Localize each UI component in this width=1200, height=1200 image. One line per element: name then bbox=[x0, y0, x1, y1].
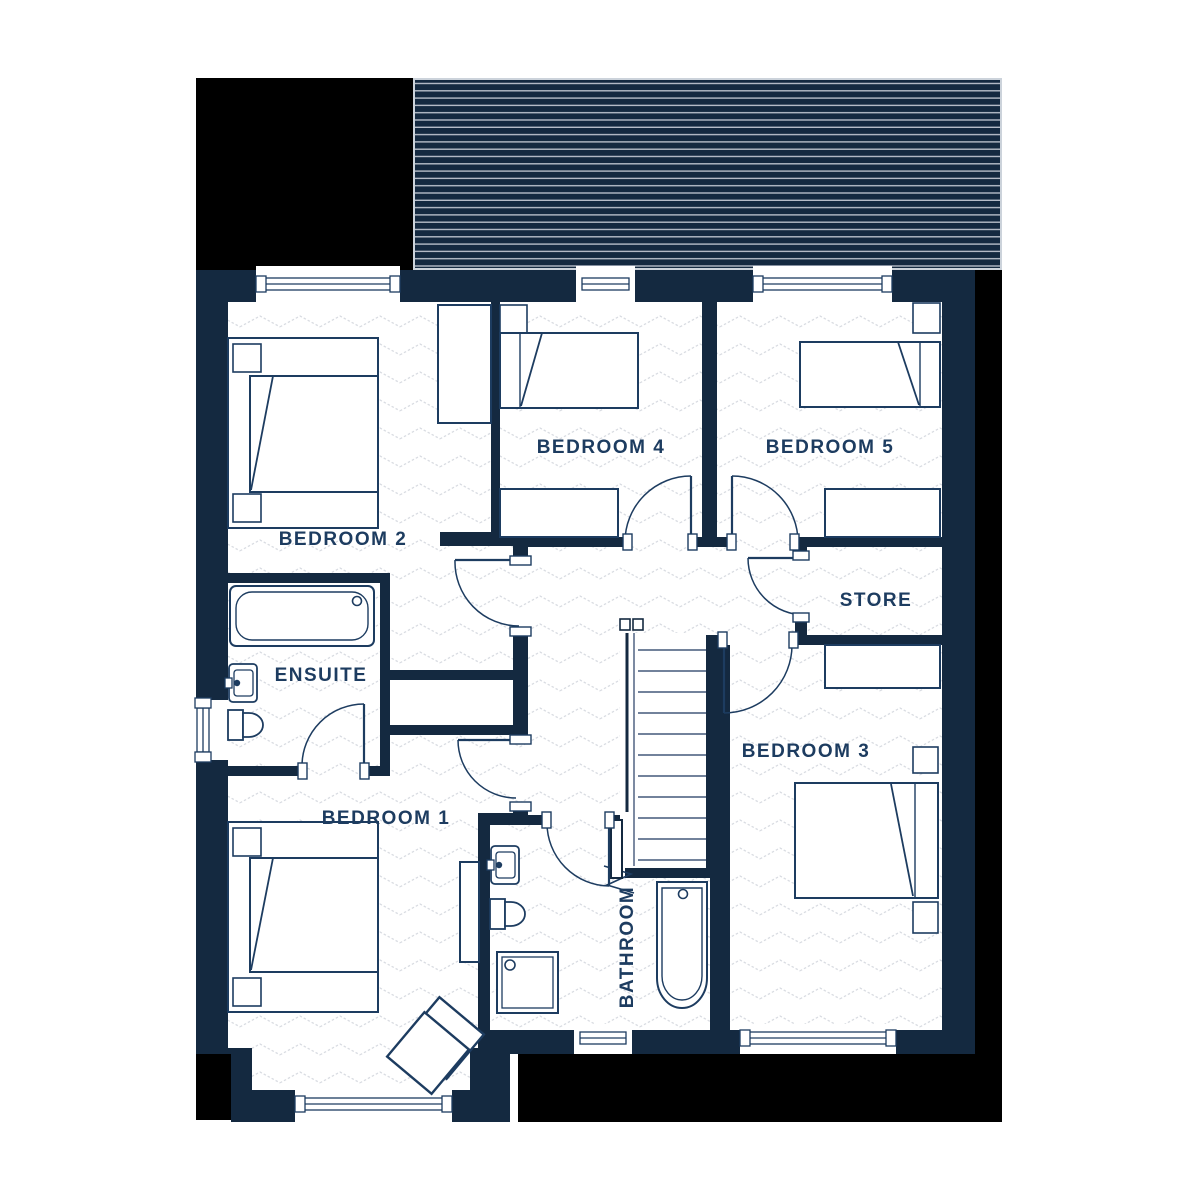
stair-guard bbox=[611, 820, 622, 878]
bathtub-bathroom bbox=[657, 882, 707, 1008]
bathtub-ensuite bbox=[230, 586, 374, 646]
built-in-cupboard bbox=[390, 680, 513, 725]
shower-bathroom bbox=[497, 952, 558, 1013]
bed-double-bedroom2 bbox=[228, 338, 378, 528]
window-bedroom3 bbox=[740, 1024, 896, 1054]
bottom-left-masked-block bbox=[196, 1048, 231, 1120]
bedroom5-label: BEDROOM 5 bbox=[766, 437, 895, 458]
wardrobe-bedroom2 bbox=[438, 305, 491, 423]
bedroom3-label: BEDROOM 3 bbox=[742, 741, 871, 762]
ensuite-label: ENSUITE bbox=[275, 665, 368, 686]
wardrobe-bedroom1 bbox=[460, 862, 479, 962]
window-bathroom bbox=[574, 1024, 632, 1054]
bottom-masked-band bbox=[518, 1054, 1002, 1122]
sink-bathroom bbox=[487, 846, 519, 884]
floor-plan-page: BEDROOM 2 BEDROOM 4 BEDROOM 5 STORE BEDR… bbox=[0, 0, 1200, 1200]
window-bedroom4 bbox=[576, 266, 635, 302]
adjoining-solid-block bbox=[196, 78, 413, 270]
window-bedroom2 bbox=[256, 266, 400, 302]
desk-bedroom3 bbox=[825, 645, 940, 688]
window-bedroom5 bbox=[753, 266, 892, 302]
sink-ensuite bbox=[225, 664, 257, 702]
floor-plan: BEDROOM 2 BEDROOM 4 BEDROOM 5 STORE BEDR… bbox=[0, 0, 1200, 1200]
bedroom4-label: BEDROOM 4 bbox=[537, 437, 666, 458]
store-label: STORE bbox=[840, 590, 913, 611]
right-masked-strip bbox=[975, 270, 1002, 1054]
roof-hatch-block bbox=[413, 78, 1002, 270]
landing-floor bbox=[528, 547, 795, 635]
stair-newel-post bbox=[633, 619, 643, 630]
desk-bedroom4 bbox=[500, 489, 618, 537]
stair-newel-post bbox=[620, 619, 630, 630]
bed-double-bedroom1 bbox=[228, 822, 378, 1012]
desk-bedroom5 bbox=[825, 489, 940, 537]
bedroom2-label: BEDROOM 2 bbox=[279, 529, 408, 550]
bedroom1-label: BEDROOM 1 bbox=[322, 808, 451, 829]
bathroom-label: BATHROOM bbox=[617, 886, 638, 1008]
window-ensuite bbox=[183, 698, 228, 762]
